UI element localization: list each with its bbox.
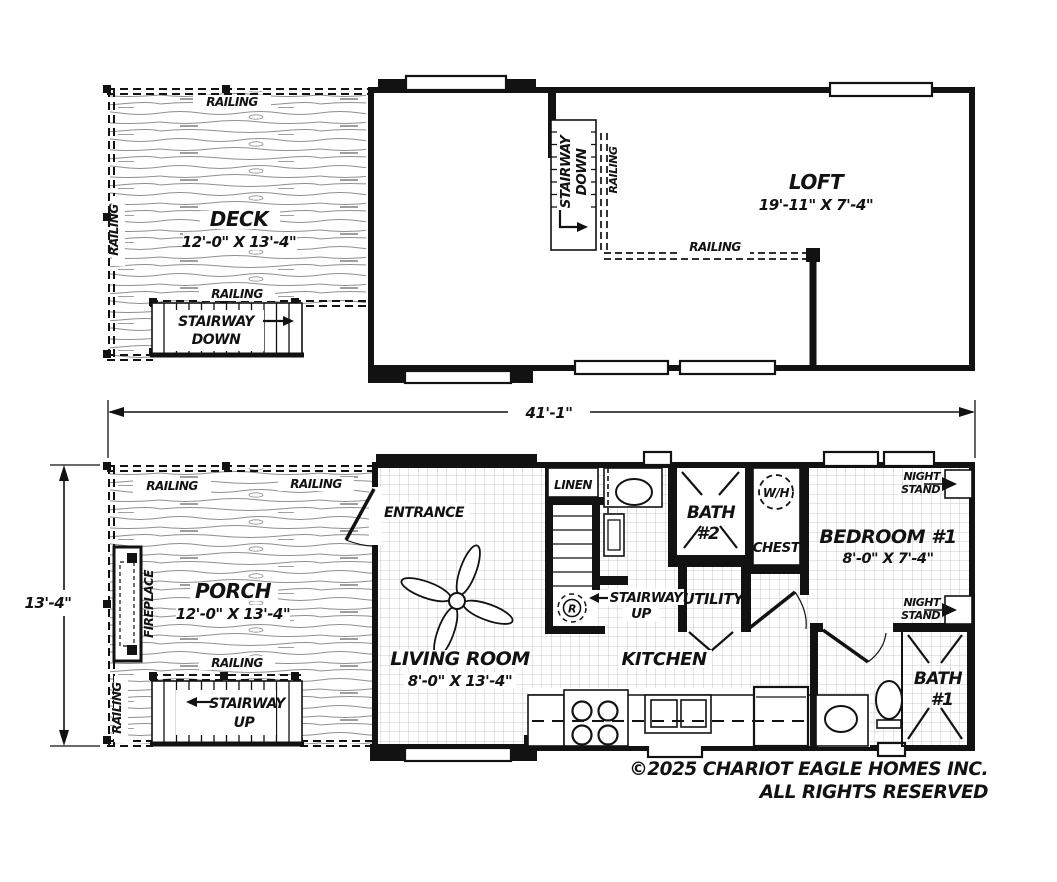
overall-width-value: 41'-1" xyxy=(525,404,573,422)
upper-bay-window-bottom xyxy=(405,371,511,383)
stove-burner xyxy=(599,702,618,721)
window-kitchen-top xyxy=(644,452,671,465)
bath1-toilet-base xyxy=(877,720,901,728)
bath2-label-1: BATH xyxy=(687,503,736,523)
stove xyxy=(564,690,628,746)
fireplace-body xyxy=(114,547,141,661)
deck-stairway-down: STAIRWAY DOWN xyxy=(150,303,304,355)
deck: RAILING RAILING RAILING DECK 12'-0" X 13… xyxy=(103,85,369,360)
main-floor-plan: RAILING RAILING RAILING RAILING FIREPLAC… xyxy=(103,452,972,761)
deck-railing-mid-label: RAILING xyxy=(211,287,263,301)
porch-railing-label-3: RAILING xyxy=(211,656,263,670)
upper-window-top-left xyxy=(406,76,506,90)
bath1-sink xyxy=(825,706,857,732)
night-stand-bottom-label-1: NIGHT xyxy=(903,596,942,609)
bath1-toilet xyxy=(876,681,902,719)
living-room-name: LIVING ROOM xyxy=(390,648,530,670)
living-room-size: 8'-0" X 13'-4" xyxy=(408,672,512,690)
porch-railing-label-1: RAILING xyxy=(146,479,198,493)
side-dim-arrow-bottom xyxy=(59,730,69,746)
bath1-label-2: #1 xyxy=(931,690,954,710)
porch-stairway-up: STAIRWAY UP xyxy=(150,681,304,744)
refrigerator xyxy=(754,687,808,746)
copyright-line-1: ©2025 CHARIOT EAGLE HOMES INC. xyxy=(629,759,988,780)
night-stand-top-label-2: STAND xyxy=(901,483,940,496)
bedroom1-size: 8'-0" X 7'-4" xyxy=(842,551,933,567)
porch-name: PORCH xyxy=(195,579,272,603)
copyright: ©2025 CHARIOT EAGLE HOMES INC. ALL RIGHT… xyxy=(629,759,988,803)
range-symbol-letter: R xyxy=(568,603,576,616)
upper-window-bottom-right xyxy=(680,361,775,374)
window-bedroom-top-1 xyxy=(824,452,878,466)
porch-stair-label-2: UP xyxy=(234,715,256,731)
water-heater-label: W/H xyxy=(763,486,790,500)
bedroom1-name: BEDROOM #1 xyxy=(819,526,956,548)
floor-plan-drawing: RAILING RAILING RAILING DECK 12'-0" X 13… xyxy=(0,0,1057,882)
main-top-wall-bump xyxy=(376,454,537,468)
upper-stair-label-2: DOWN xyxy=(574,147,590,195)
fireplace-label: FIREPLACE xyxy=(142,569,156,638)
entrance-label: ENTRANCE xyxy=(384,505,465,521)
linen-label: LINEN xyxy=(554,478,592,492)
kitchen-sink xyxy=(645,695,711,733)
porch: RAILING RAILING RAILING RAILING FIREPLAC… xyxy=(103,462,375,746)
bay-window-living xyxy=(405,748,511,761)
deck-railing-left-label: RAILING xyxy=(107,204,121,256)
dim-arrow-left xyxy=(108,407,124,417)
bath1-label-1: BATH xyxy=(914,669,963,689)
stove-burner xyxy=(573,702,592,721)
night-stand-bottom-label-2: STAND xyxy=(901,609,940,622)
window-bedroom-top-2 xyxy=(884,452,934,466)
night-stand-top-label-1: NIGHT xyxy=(903,470,942,483)
window-bath1-bottom xyxy=(878,743,905,756)
upper-stair-label-1: STAIRWAY xyxy=(558,134,574,209)
upper-window-top-right xyxy=(830,83,932,96)
dim-arrow-right xyxy=(959,407,975,417)
loft-name: LOFT xyxy=(789,170,845,194)
side-dim-arrow-top xyxy=(59,465,69,481)
loft-railing-label: RAILING xyxy=(689,240,741,254)
kitchen-label: KITCHEN xyxy=(621,649,706,670)
side-height-dimension: 13'-4" xyxy=(25,465,100,746)
copyright-line-2: ALL RIGHTS RESERVED xyxy=(758,782,989,803)
main-structure: ENTRANCE LINEN R STAIRWAY xyxy=(346,452,972,761)
deck-stair-label-2: DOWN xyxy=(192,332,241,348)
deck-stair-label-1: STAIRWAY xyxy=(178,314,256,330)
porch-stair-label-1: STAIRWAY xyxy=(209,696,287,712)
ceiling-fan-hub xyxy=(449,593,465,609)
porch-size: 12'-0" X 13'-4" xyxy=(176,605,290,623)
loft-size: 19'-11" X 7'-4" xyxy=(759,196,873,214)
deck-size: 12'-0" X 13'-4" xyxy=(182,233,296,251)
upper-floor-plan: RAILING RAILING RAILING DECK 12'-0" X 13… xyxy=(103,76,972,383)
stove-burner xyxy=(599,726,618,745)
bath2-sink xyxy=(616,479,652,505)
overall-width-dimension: 41'-1" xyxy=(108,400,975,458)
upper-window-bottom-mid xyxy=(575,361,668,374)
water-heater-chest: W/H CHEST xyxy=(753,468,802,565)
bath2-label-2: #2 xyxy=(697,524,720,544)
chest-label: CHEST xyxy=(753,540,802,556)
utility-label: UTILITY xyxy=(683,590,746,608)
deck-wood-floor-lower xyxy=(110,304,152,358)
loft-structure: STAIRWAY DOWN RAILING RAILING LOFT 19'-1… xyxy=(368,76,972,383)
deck-name: DECK xyxy=(210,207,270,231)
side-height-value: 13'-4" xyxy=(25,594,72,612)
deck-wood-floor xyxy=(110,91,366,304)
stove-burner xyxy=(573,726,592,745)
upper-stair-railing-label: RAILING xyxy=(607,146,620,193)
stairway-up-label-2: UP xyxy=(631,606,651,622)
upper-exterior-walls xyxy=(371,90,972,368)
stairway-up-label-1: STAIRWAY xyxy=(610,590,685,606)
deck-railing-top-label: RAILING xyxy=(206,95,258,109)
refrigerator-body xyxy=(754,687,808,746)
porch-railing-label-4: RAILING xyxy=(110,682,124,734)
porch-railing-label-2: RAILING xyxy=(290,477,342,491)
floor-plan-page: RAILING RAILING RAILING DECK 12'-0" X 13… xyxy=(0,0,1057,882)
